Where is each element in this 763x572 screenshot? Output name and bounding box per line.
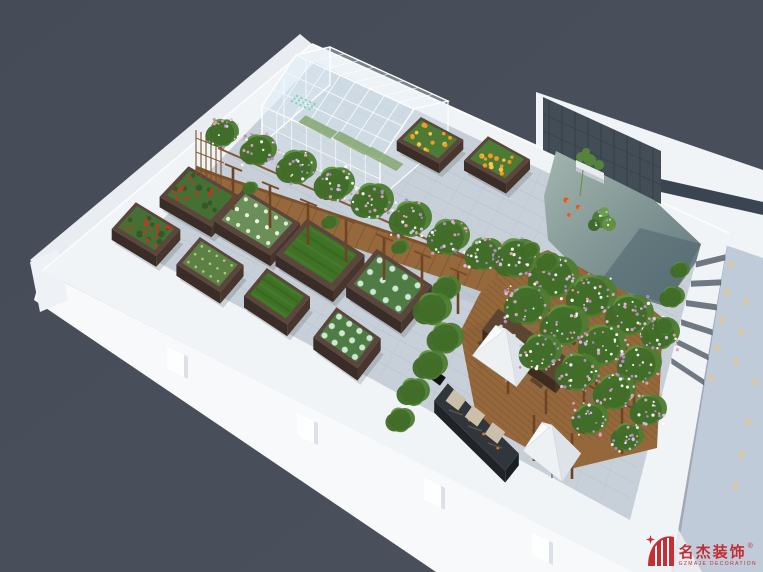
rooftop-garden-rendering [0, 0, 763, 572]
brand-name-en: GZMAJE DECORATION [679, 562, 757, 567]
registered-mark: ® [748, 543, 753, 550]
brand-name-cn: 名杰装饰 [679, 545, 747, 560]
rendering-canvas: 名杰装饰 ® GZMAJE DECORATION [0, 0, 763, 572]
gemaje-logo-icon [645, 535, 675, 567]
watermark-logo: 名杰装饰 ® GZMAJE DECORATION [645, 535, 757, 567]
